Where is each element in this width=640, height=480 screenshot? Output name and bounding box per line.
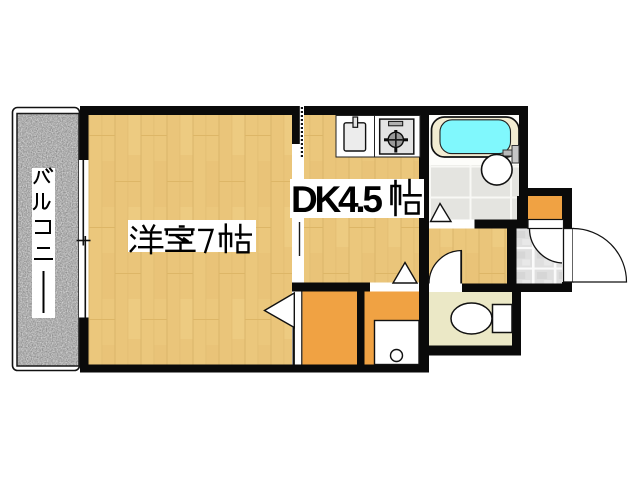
svg-text:DK4.5: DK4.5: [291, 179, 383, 220]
